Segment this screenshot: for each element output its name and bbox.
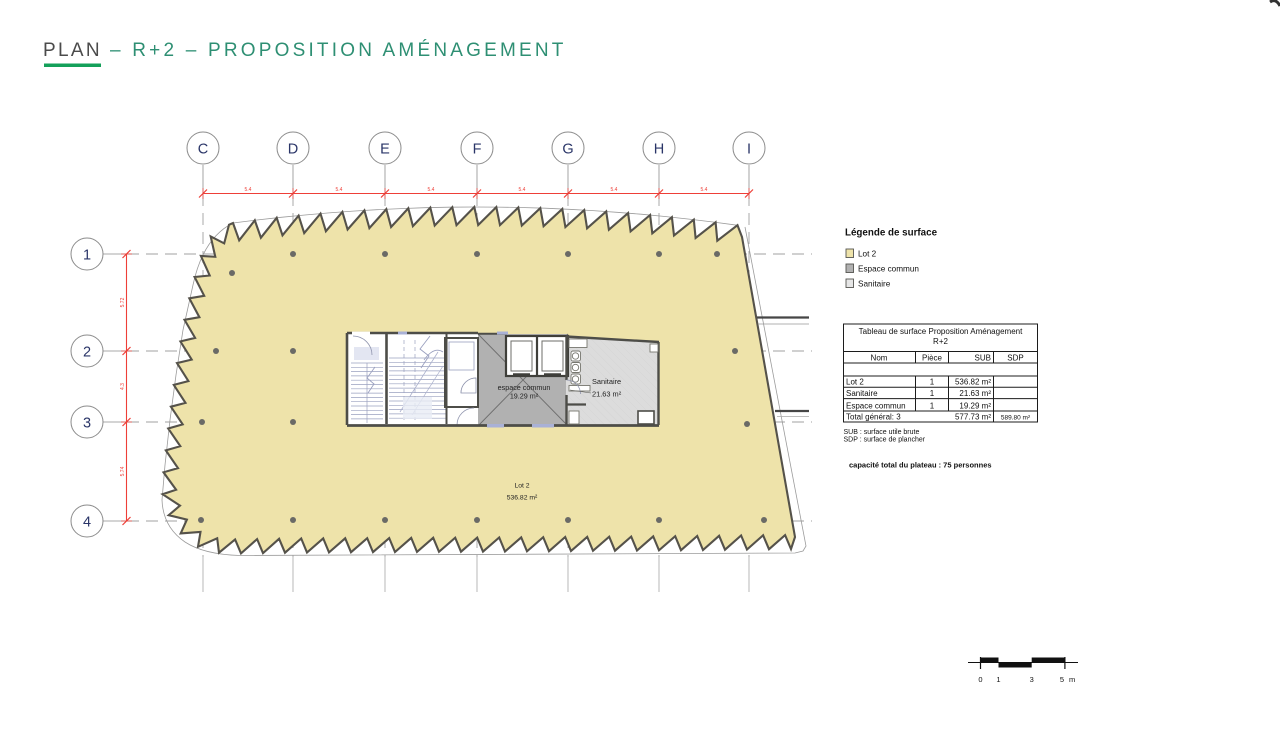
svg-text:H: H — [654, 142, 664, 158]
svg-text:Tableau de surface Proposition: Tableau de surface Proposition Aménageme… — [859, 327, 1023, 336]
svg-text:SDP : surface de plancher: SDP : surface de plancher — [844, 437, 926, 444]
svg-text:1: 1 — [930, 378, 935, 387]
svg-text:4.3: 4.3 — [120, 383, 126, 390]
svg-text:3: 3 — [1030, 675, 1034, 684]
svg-text:Espace commun: Espace commun — [846, 401, 906, 410]
svg-text:5.72: 5.72 — [120, 297, 126, 307]
svg-text:R+2: R+2 — [933, 337, 948, 346]
svg-text:SUB: SUB — [975, 354, 991, 363]
svg-text:1: 1 — [930, 401, 935, 410]
svg-text:5.4: 5.4 — [519, 187, 526, 193]
svg-text:C: C — [198, 142, 208, 158]
svg-text:536.82 m²: 536.82 m² — [955, 378, 991, 387]
svg-text:589.80 m²: 589.80 m² — [1001, 415, 1031, 422]
svg-text:4: 4 — [83, 515, 91, 531]
svg-text:5.4: 5.4 — [428, 187, 435, 193]
svg-text:1: 1 — [83, 248, 91, 264]
svg-text:SUB : surface utile brute: SUB : surface utile brute — [844, 429, 920, 436]
svg-text:Pièce: Pièce — [922, 354, 943, 363]
svg-text:Sanitaire: Sanitaire — [846, 389, 878, 398]
svg-text:m: m — [1069, 675, 1075, 684]
svg-text:21.63 m²: 21.63 m² — [592, 390, 622, 399]
svg-text:1: 1 — [996, 675, 1000, 684]
svg-text:5: 5 — [1060, 675, 1064, 684]
svg-text:capacité total du plateau : 75: capacité total du plateau : 75 personnes — [849, 461, 992, 470]
svg-text:Lot 2: Lot 2 — [858, 250, 877, 259]
svg-text:3: 3 — [83, 416, 91, 432]
svg-text:21.63 m²: 21.63 m² — [959, 389, 991, 398]
svg-text:Sanitaire: Sanitaire — [592, 377, 621, 386]
svg-text:Lot 2: Lot 2 — [514, 483, 529, 490]
svg-text:D: D — [288, 142, 298, 158]
svg-text:Espace commun: Espace commun — [858, 265, 919, 274]
svg-text:G: G — [562, 142, 573, 158]
svg-text:0: 0 — [978, 675, 982, 684]
svg-text:Nom: Nom — [871, 354, 888, 363]
svg-text:5.74: 5.74 — [120, 466, 126, 476]
svg-text:1: 1 — [930, 389, 935, 398]
svg-text:5.4: 5.4 — [245, 187, 252, 193]
svg-text:19.29 m²: 19.29 m² — [510, 392, 539, 401]
svg-text:5.4: 5.4 — [611, 187, 618, 193]
svg-text:5.4: 5.4 — [336, 187, 343, 193]
svg-text:I: I — [747, 142, 751, 158]
svg-text:Sanitaire: Sanitaire — [858, 280, 891, 289]
svg-text:5.4: 5.4 — [701, 187, 708, 193]
svg-text:Lot 2: Lot 2 — [846, 378, 864, 387]
svg-text:2: 2 — [83, 345, 91, 361]
svg-text:E: E — [380, 142, 390, 158]
svg-text:Légende de surface: Légende de surface — [845, 228, 938, 239]
svg-text:– R+2 – PROPOSITION AMÉNAG: – R+2 – PROPOSITION AMÉNAGEMENT — [110, 40, 567, 61]
svg-text:SDP: SDP — [1007, 354, 1023, 363]
svg-text:F: F — [473, 142, 482, 158]
svg-text:19.29 m²: 19.29 m² — [959, 401, 991, 410]
svg-text:536.82 m²: 536.82 m² — [507, 495, 538, 502]
svg-text:PLAN: PLAN — [43, 40, 102, 61]
svg-text:577.73 m²: 577.73 m² — [955, 413, 991, 422]
svg-text:Total général: 3: Total général: 3 — [846, 413, 901, 422]
